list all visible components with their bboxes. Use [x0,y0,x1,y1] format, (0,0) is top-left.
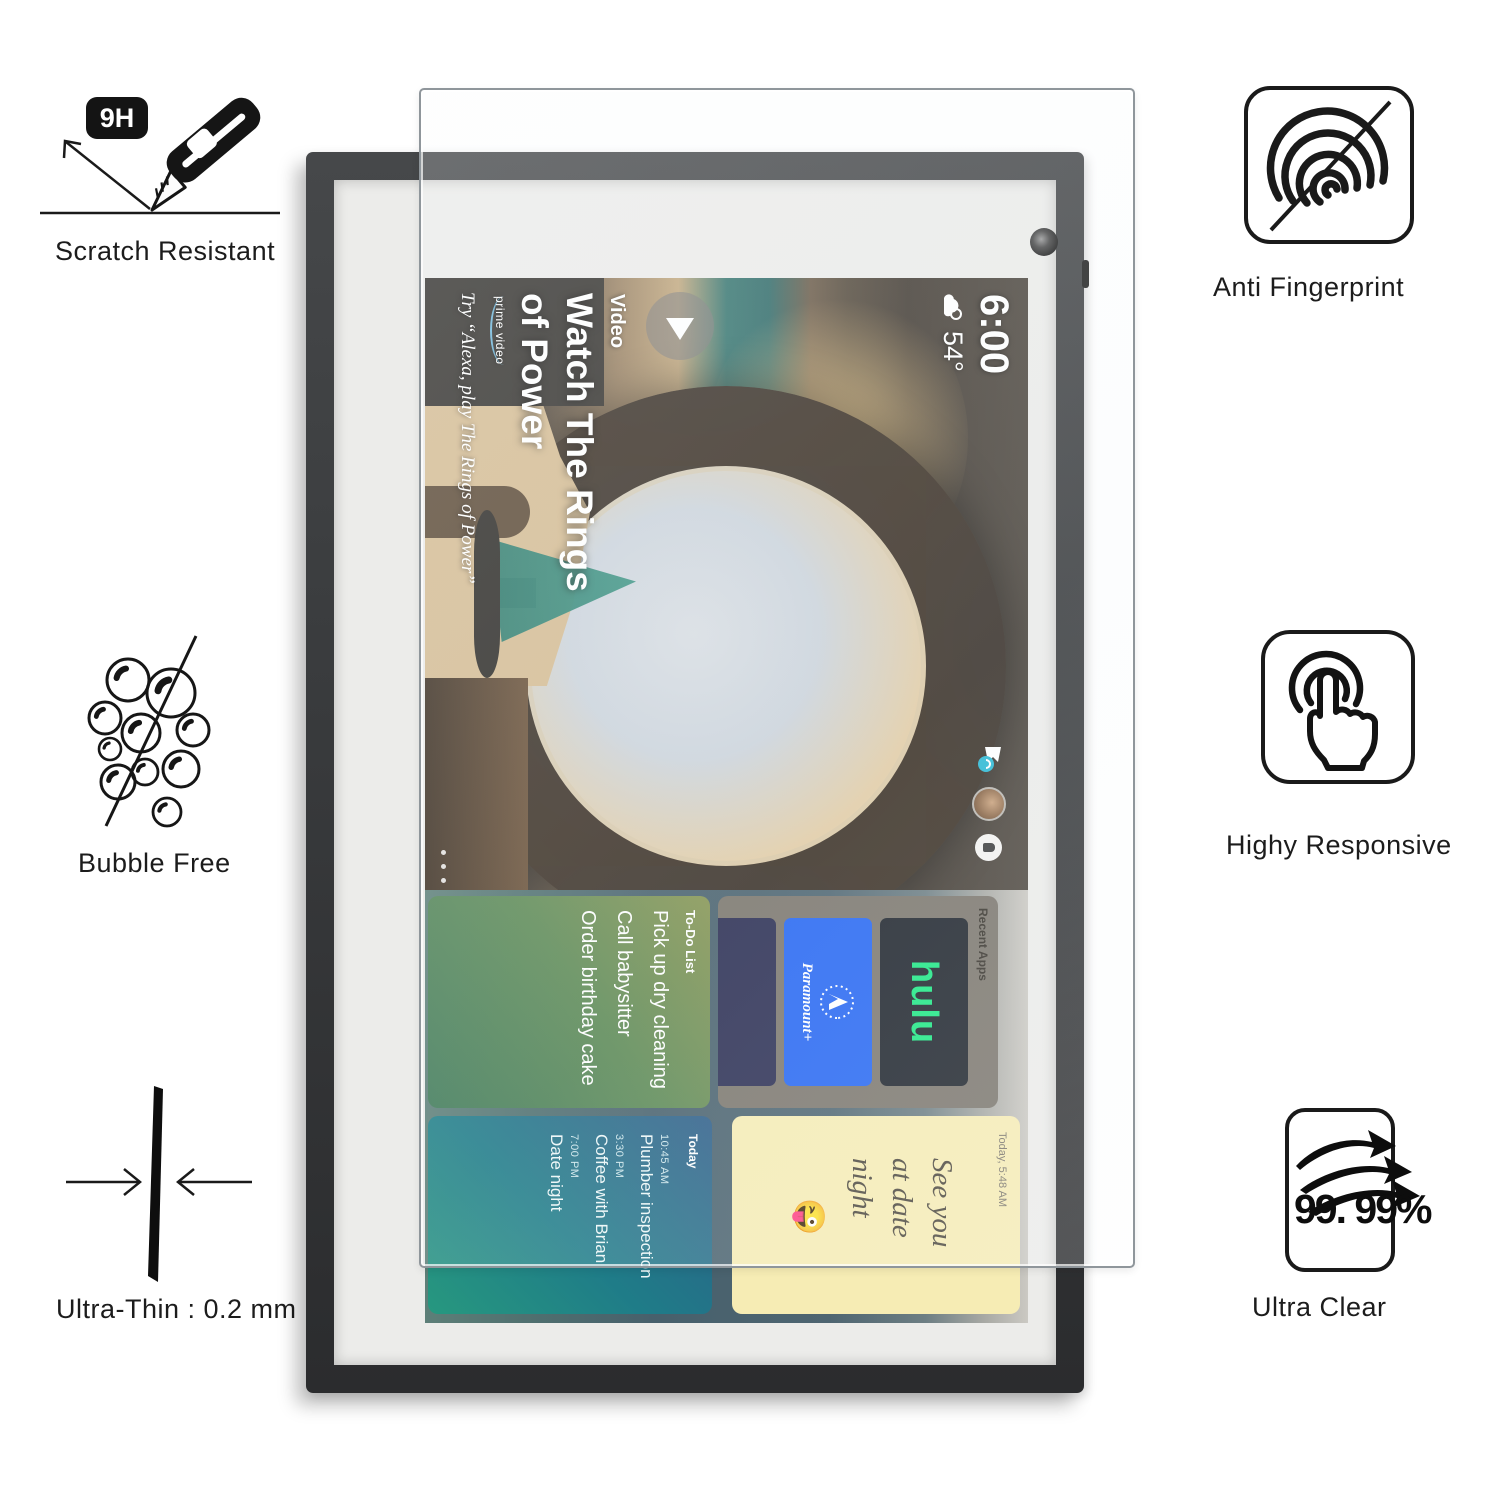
callout-label-responsive: Highy Responsive [1226,830,1452,861]
screen-protector-overlay [419,88,1135,1268]
callout-label-bubble: Bubble Free [78,848,231,879]
product-image: 9H Scratch Resistant Anti Fingerprint [0,0,1500,1500]
anti-fingerprint-icon [1240,78,1420,258]
touch-icon [1252,622,1427,797]
thin-profile-icon [50,1070,290,1300]
bubbles-icon [60,600,320,860]
callout-label-clear: Ultra Clear [1252,1292,1387,1323]
callout-label-fingerprint: Anti Fingerprint [1213,272,1404,303]
clarity-percentage: 99. 99% [1294,1186,1430,1233]
callout-label-scratch: Scratch Resistant [55,236,275,267]
cutter-knife-icon [28,72,318,242]
callout-label-thin: Ultra-Thin : 0.2 mm [56,1294,297,1325]
